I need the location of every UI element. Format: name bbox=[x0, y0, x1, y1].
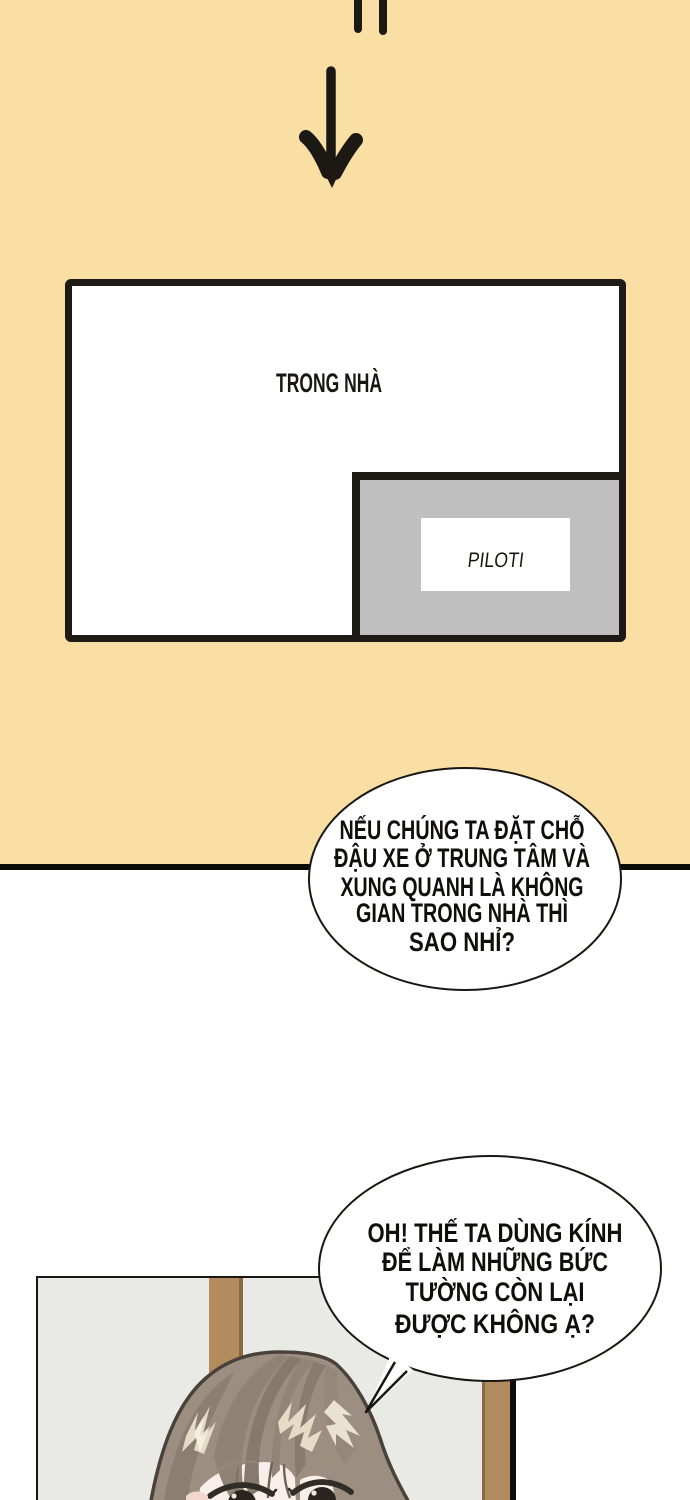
svg-text:ĐƯỢC KHÔNG Ạ?: ĐƯỢC KHÔNG Ạ? bbox=[395, 1308, 595, 1339]
svg-text:ĐỂ LÀM NHỮNG BỨC: ĐỂ LÀM NHỮNG BỨC bbox=[382, 1246, 608, 1277]
svg-text:TƯỜNG CÒN LẠI: TƯỜNG CÒN LẠI bbox=[406, 1276, 585, 1307]
svg-text:OH! THẾ TA DÙNG KÍNH: OH! THẾ TA DÙNG KÍNH bbox=[368, 1217, 623, 1248]
svg-text:TRONG NHÀ: TRONG NHÀ bbox=[276, 367, 382, 398]
svg-text:NẾU CHÚNG TA ĐẶT CHỖ: NẾU CHÚNG TA ĐẶT CHỖ bbox=[340, 814, 585, 845]
svg-text:GIAN TRONG NHÀ THÌ: GIAN TRONG NHÀ THÌ bbox=[356, 897, 568, 928]
svg-text:ĐẬU XE Ở TRUNG TÂM VÀ: ĐẬU XE Ở TRUNG TÂM VÀ bbox=[334, 841, 590, 873]
svg-text:PILOTI: PILOTI bbox=[466, 549, 525, 572]
svg-text:SAO NHỈ?: SAO NHỈ? bbox=[409, 925, 515, 957]
